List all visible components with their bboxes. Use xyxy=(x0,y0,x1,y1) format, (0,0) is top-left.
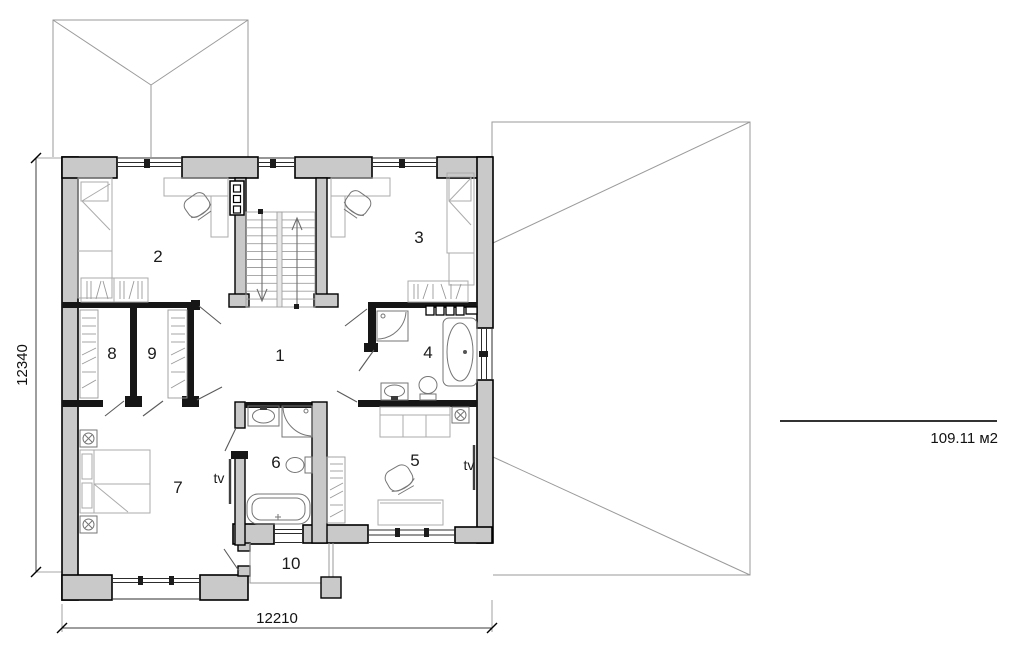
room-label-9: 9 xyxy=(147,344,156,363)
tv-label-room5: tv xyxy=(464,457,475,473)
roof-outline-top-left xyxy=(53,20,248,157)
room-label-7: 7 xyxy=(173,478,182,497)
dimension-vertical-label: 12340 xyxy=(14,344,31,386)
room-label-6: 6 xyxy=(271,453,280,472)
room-label-8: 8 xyxy=(107,344,116,363)
balcony-post xyxy=(321,577,341,598)
room-label-4: 4 xyxy=(423,343,432,362)
room-label-5: 5 xyxy=(410,451,419,470)
floor-plan-drawing: 12340 12210 109.11 м2 xyxy=(0,0,1024,657)
floor-plan-page: 12340 12210 109.11 м2 xyxy=(0,0,1024,657)
room-label-1: 1 xyxy=(275,346,284,365)
cabinet-row xyxy=(426,306,477,315)
wardrobe-icon xyxy=(81,278,148,302)
room-label-3: 3 xyxy=(414,228,423,247)
dimension-horizontal-label: 12210 xyxy=(256,610,298,627)
dimension-vertical: 12340 xyxy=(14,153,62,577)
room-label-10: 10 xyxy=(282,554,301,573)
tv-label-room7: tv xyxy=(214,470,225,486)
hall-shelf xyxy=(230,181,244,215)
area-callout: 109.11 м2 xyxy=(780,421,998,447)
room-label-2: 2 xyxy=(153,247,162,266)
area-label: 109.11 м2 xyxy=(930,430,998,447)
